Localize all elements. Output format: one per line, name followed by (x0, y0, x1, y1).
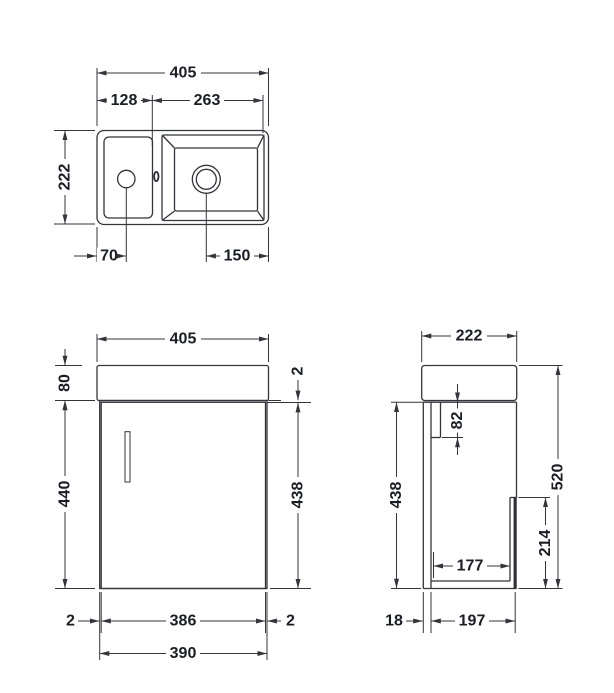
bowl-bevel (162, 135, 175, 148)
plan-view: 405 128 263 222 70 (54, 65, 269, 265)
basin-front (97, 366, 269, 401)
tap-deck (104, 137, 153, 218)
dim-label: 128 (111, 92, 138, 109)
technical-drawing-page: 405 128 263 222 70 (0, 0, 614, 693)
bowl-bevel (258, 135, 265, 148)
dim-depth-top: 222 (54, 131, 95, 225)
front-view: 405 80 440 2 438 (55, 331, 311, 663)
dim-internal-depth: 177 (434, 552, 511, 578)
dim-label: 214 (537, 530, 554, 557)
dim-label: 222 (456, 328, 483, 345)
back-panel (514, 498, 517, 589)
basin-side (422, 366, 517, 401)
dim-cabinet-height: 440 (55, 401, 95, 589)
dim-label: 2 (66, 613, 75, 630)
tap-hole (118, 170, 135, 187)
dim-label: 80 (57, 374, 74, 392)
dim-tap-offset: 70 (74, 188, 126, 265)
dim-waste-offset: 150 (206, 194, 268, 265)
dim-bottom-chain: 2 386 2 390 (64, 592, 298, 662)
dim-overall-width-front: 405 (97, 331, 269, 363)
dim-label: 177 (457, 558, 484, 575)
dim-label: 438 (388, 482, 405, 509)
dim-label: 263 (194, 92, 221, 109)
dim-label: 82 (449, 412, 466, 430)
dim-label: 150 (224, 248, 251, 265)
dim-bottom-chain-side: 18 197 (382, 592, 515, 633)
dim-label: 405 (170, 65, 197, 82)
door-front (101, 402, 265, 588)
dim-door-height-side: 438 (388, 402, 423, 588)
dim-label: 390 (170, 645, 197, 662)
dim-label: 438 (290, 482, 307, 509)
dim-label: 386 (170, 613, 197, 630)
dim-label: 18 (385, 613, 403, 630)
dim-depth-side: 222 (422, 328, 517, 363)
vanity-unit-drawing: 405 128 263 222 70 (0, 0, 614, 693)
dim-label: 70 (100, 248, 118, 265)
dim-label: 440 (57, 481, 74, 508)
bowl-bevel (258, 211, 265, 221)
bowl-bevel (162, 211, 175, 221)
door-handle (125, 432, 130, 482)
dim-rail-height: 82 (442, 384, 466, 455)
dim-door-height-front: 438 (270, 403, 311, 589)
side-view: 222 438 82 520 214 (382, 328, 567, 634)
dim-back-panel-height: 214 (519, 498, 555, 589)
dim-label: 222 (57, 164, 74, 191)
dim-label: 2 (286, 613, 295, 630)
cabinet-front (100, 401, 267, 589)
dim-top-gap: 2 (267, 364, 311, 403)
dim-label: 520 (550, 464, 567, 491)
dim-basin-height: 80 (55, 349, 95, 417)
dim-bowl-width: 263 (152, 92, 263, 133)
dim-label: 197 (459, 613, 486, 630)
overflow-hole (154, 172, 158, 181)
dim-label: 2 (290, 366, 307, 375)
dim-label: 405 (170, 331, 197, 348)
waste-inner (196, 169, 216, 189)
